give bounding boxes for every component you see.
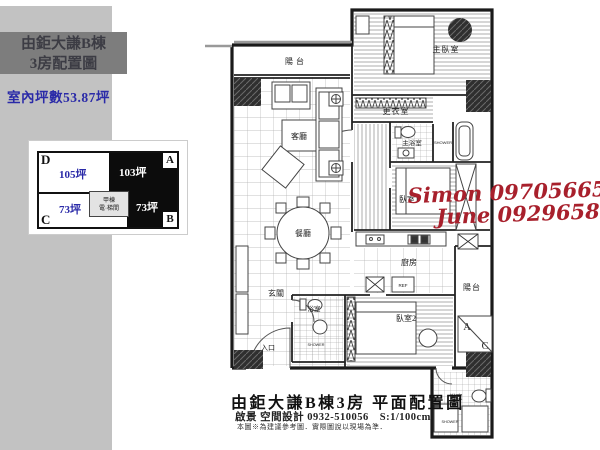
label-ac-c: C [482, 341, 489, 352]
watermark-line2: June 0929658299 [436, 199, 600, 228]
label-shower-3: SHOWER [441, 420, 458, 424]
label-dressing: 更衣室 [383, 106, 410, 116]
label-foyer: 玄關 [268, 288, 284, 298]
disclaimer-note: 本圖※為建議參考圖．實際圖說以現場為準． [237, 422, 387, 432]
label-dining: 餐廳 [295, 228, 311, 238]
label-master-bath: 主浴室 [402, 138, 422, 147]
label-balcony-right: 陽台 [463, 282, 481, 292]
flyer-page: 由鉅大謙B棟 3房配置圖 室內坪數53.87坪 D A C B 105坪 103… [0, 0, 600, 450]
label-living: 客廳 [291, 131, 307, 141]
label-bedroom2: 臥室2 [396, 313, 416, 323]
label-shower-2: SHOWER [307, 343, 324, 347]
label-ac-a: A [463, 322, 471, 333]
label-shower-1: SHOWER [434, 140, 452, 145]
label-ref: REF [399, 283, 408, 288]
label-master-bedroom: 主臥室 [433, 44, 460, 54]
label-bath2: 浴室 [308, 304, 322, 313]
label-entrance: 入口 [261, 344, 275, 352]
label-kitchen: 廚房 [401, 257, 417, 267]
label-balcony-top: 陽台 [285, 56, 307, 66]
agent-watermark: Simon 0970566507 June 0929658299 [407, 177, 600, 229]
